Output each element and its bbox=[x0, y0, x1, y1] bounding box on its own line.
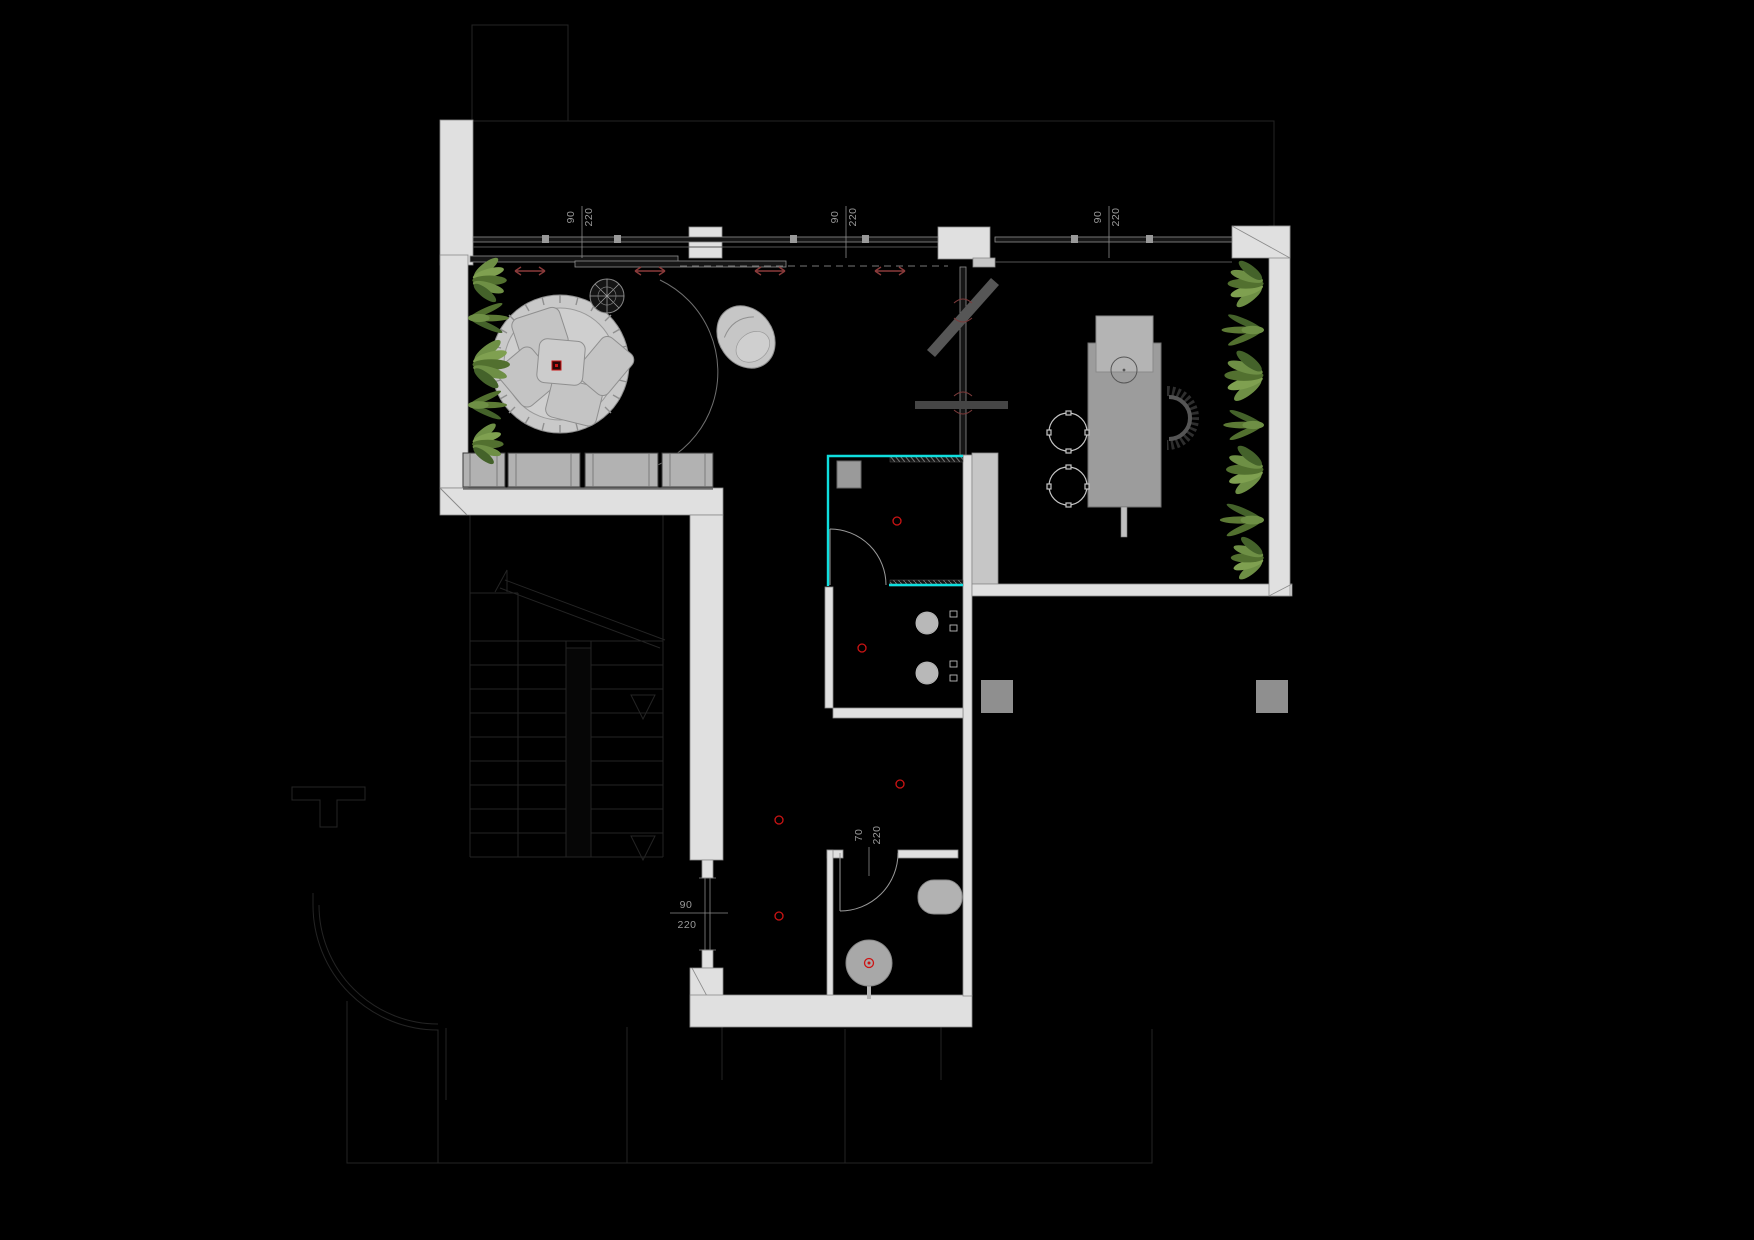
daybed-center-marker bbox=[552, 361, 561, 370]
fan-plant bbox=[590, 279, 624, 313]
shower bbox=[846, 940, 892, 999]
plant-row-left bbox=[468, 255, 510, 467]
plant-row-right bbox=[1220, 258, 1265, 583]
toilet bbox=[918, 880, 962, 914]
washbasin bbox=[916, 612, 938, 684]
dressing-door bbox=[830, 529, 886, 585]
sliding-door-leaf-horizontal bbox=[915, 401, 1008, 409]
wall-sink-left bbox=[825, 587, 833, 708]
wall-dining-right bbox=[1269, 226, 1290, 596]
wall-core-right bbox=[963, 455, 972, 996]
dimensions: 90 220 90 220 90 220 70 220 90 220 bbox=[565, 206, 1122, 931]
dim-label: 220 bbox=[583, 207, 595, 226]
head-chair bbox=[1096, 316, 1153, 372]
wall-pier-mid bbox=[689, 227, 722, 258]
faucet-icon bbox=[950, 611, 957, 681]
wall-dressing-right bbox=[972, 453, 998, 584]
wall-pier-right bbox=[938, 227, 990, 259]
dim-label: 220 bbox=[1110, 207, 1122, 226]
dim-label: 220 bbox=[871, 825, 883, 844]
wall-dining-bottom bbox=[972, 584, 1292, 596]
wall-wc-left bbox=[827, 850, 833, 995]
wc-room bbox=[840, 853, 962, 999]
dim-label: 90 bbox=[829, 211, 841, 224]
cabinet bbox=[837, 461, 861, 488]
table-leg bbox=[1121, 507, 1127, 537]
glazing-vertical bbox=[960, 267, 966, 455]
floor-plan-svg: 90 220 90 220 90 220 70 220 90 220 bbox=[0, 0, 1754, 1240]
round-daybed bbox=[491, 295, 637, 433]
dining-room bbox=[1047, 316, 1194, 537]
wall-sink-bottom bbox=[833, 708, 963, 718]
slide-arrows bbox=[515, 267, 905, 275]
dim-label: 220 bbox=[847, 207, 859, 226]
dim-label: 90 bbox=[680, 899, 693, 911]
lounge-chair bbox=[705, 294, 787, 379]
wall-corridor-left bbox=[690, 515, 723, 860]
horseshoe-chair bbox=[1167, 391, 1194, 445]
dim-label: 70 bbox=[853, 829, 865, 842]
sink-room bbox=[916, 611, 957, 684]
column-left bbox=[981, 680, 1013, 713]
dim-label: 90 bbox=[1092, 211, 1104, 224]
corridor-door bbox=[699, 878, 716, 950]
round-chair bbox=[1047, 411, 1089, 507]
wall-bottom-band bbox=[690, 995, 972, 1027]
wall-pier-top-left bbox=[440, 120, 473, 265]
dressing-room bbox=[828, 456, 963, 586]
column-right bbox=[1256, 680, 1288, 713]
terrace bbox=[463, 279, 787, 489]
window-dining bbox=[995, 237, 1232, 242]
wall-terrace-bottom bbox=[440, 488, 723, 515]
dim-label: 220 bbox=[677, 919, 696, 931]
context-stairs bbox=[470, 515, 665, 860]
bench-cushions bbox=[463, 453, 713, 489]
dim-label: 90 bbox=[565, 211, 577, 224]
